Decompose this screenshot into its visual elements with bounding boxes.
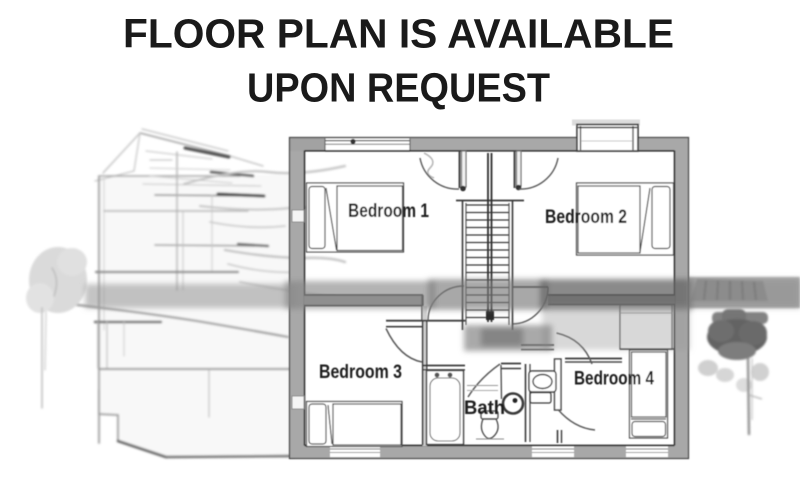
svg-text:Bedroom 1: Bedroom 1 xyxy=(348,201,429,222)
svg-text:FLOOR PLAN IS AVAILABLE: FLOOR PLAN IS AVAILABLE xyxy=(123,11,674,57)
svg-text:Bath: Bath xyxy=(464,398,505,419)
svg-text:UPON REQUEST: UPON REQUEST xyxy=(247,65,550,111)
svg-text:Bedroom 2: Bedroom 2 xyxy=(545,207,627,228)
svg-text:Bedroom 4: Bedroom 4 xyxy=(574,369,654,390)
svg-text:Bedroom 3: Bedroom 3 xyxy=(319,362,402,383)
